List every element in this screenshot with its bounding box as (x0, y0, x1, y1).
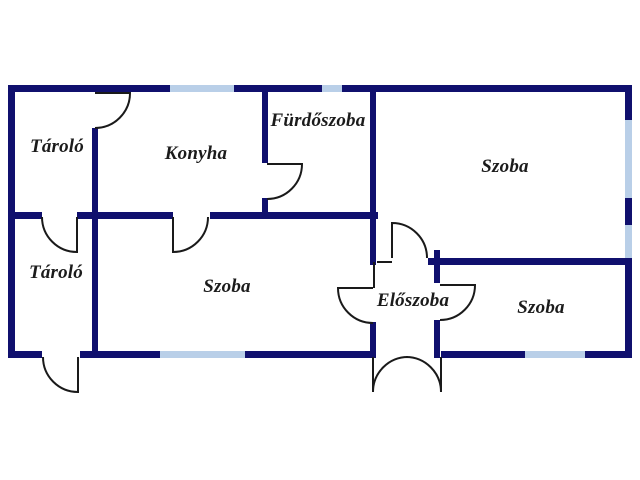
door-tarolo-konyha (95, 93, 130, 128)
room-label-szoba-middle: Szoba (203, 276, 250, 298)
door-tarolo-exterior (43, 357, 78, 392)
room-label-furdoszoba: Fürdőszoba (271, 110, 366, 132)
door-swing-layer (0, 0, 640, 480)
room-label-tarolo-upper: Tároló (30, 136, 84, 158)
door-szoba-eloszoba (338, 288, 373, 323)
entrance-door-right (406, 357, 441, 392)
floor-plan: Tároló Konyha Fürdőszoba Szoba Tároló Sz… (0, 0, 640, 480)
room-label-tarolo-lower: Tároló (29, 262, 83, 284)
door-konyha-furdoszoba (267, 164, 302, 199)
door-konyha-szoba (173, 217, 208, 252)
room-label-szoba-bottomright: Szoba (517, 297, 564, 319)
door-tarolo-tarolo (42, 217, 77, 252)
room-label-szoba-topright: Szoba (481, 156, 528, 178)
room-label-eloszoba: Előszoba (377, 290, 449, 312)
door-eloszoba-szoba-top (392, 223, 427, 258)
room-label-konyha: Konyha (165, 143, 227, 165)
entrance-door-left (373, 357, 408, 392)
